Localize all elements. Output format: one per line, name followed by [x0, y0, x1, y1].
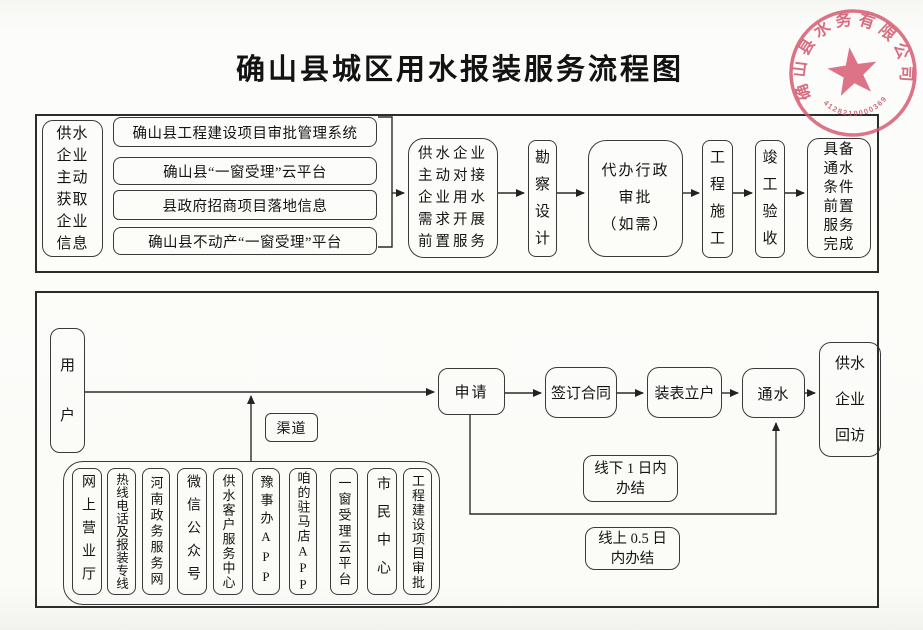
box-construction: 工 程 施 工 — [702, 140, 733, 258]
seal-star-icon — [825, 44, 880, 97]
channel-henan-gov-web: 河南政务服务网 — [142, 468, 170, 595]
box-completion-acceptance: 竣 工 验 收 — [755, 140, 785, 258]
box-survey-design: 勘 察 设 计 — [528, 140, 557, 257]
box-agency-approval: 代办行政 审批 （如需） — [588, 140, 683, 257]
box-user: 用 户 — [50, 328, 85, 453]
box-platform-investment-info: 县政府招商项目落地信息 — [113, 190, 377, 220]
channel-online-hall: 网上营业厅 — [72, 468, 102, 595]
box-return-visit: 供水 企业 回访 — [819, 342, 881, 457]
channel-citizen-center: 市民中心 — [367, 468, 397, 595]
box-sign-contract: 签订合同 — [545, 367, 617, 418]
box-source-info: 供水 企业 主动 获取 企业 信息 — [42, 120, 103, 257]
box-online-sla: 线上 0.5 日 内办结 — [585, 527, 680, 570]
box-dock-service: 供水企业 主动对接 企业用水 需求开展 前置服务 — [408, 138, 498, 258]
box-offline-sla: 线下 1 日内 办结 — [583, 455, 678, 502]
channel-customer-center: 供水客户服务中心 — [213, 468, 243, 595]
channel-zhumadian-app: 咱的驻马店APP — [289, 468, 317, 595]
channel-one-window-cloud: 一窗受理云平台 — [330, 468, 358, 595]
scanned-flowchart-page: { "title": "确山县城区用水报装服务流程图", "seal": { "… — [0, 0, 923, 630]
box-platform-one-window-cloud: 确山县“一窗受理”云平台 — [113, 157, 377, 185]
box-install-meter: 装表立户 — [647, 367, 722, 418]
box-platform-approval-system: 确山县工程建设项目审批管理系统 — [113, 117, 377, 147]
box-water-on: 通水 — [742, 368, 805, 418]
channel-hotline: 热线电话及报装专线 — [107, 468, 136, 595]
box-ready-for-water: 具备 通水 条件 前置 服务 完成 — [807, 138, 871, 258]
page-title: 确山县城区用水报装服务流程图 — [200, 46, 720, 88]
channel-wechat: 微信公众号 — [177, 468, 207, 595]
channel-yushiban-app: 豫事办APP — [252, 468, 280, 595]
box-apply: 申请 — [438, 368, 505, 415]
seal-company-text: 确山县水务有限公司 — [783, 3, 918, 104]
svg-text:确山县水务有限公司: 确山县水务有限公司 — [783, 3, 918, 104]
box-platform-real-estate: 确山县不动产“一窗受理”平台 — [113, 227, 377, 255]
box-channel-label: 渠道 — [265, 413, 318, 442]
channel-project-approval: 工程建设项目审批 — [403, 468, 432, 595]
